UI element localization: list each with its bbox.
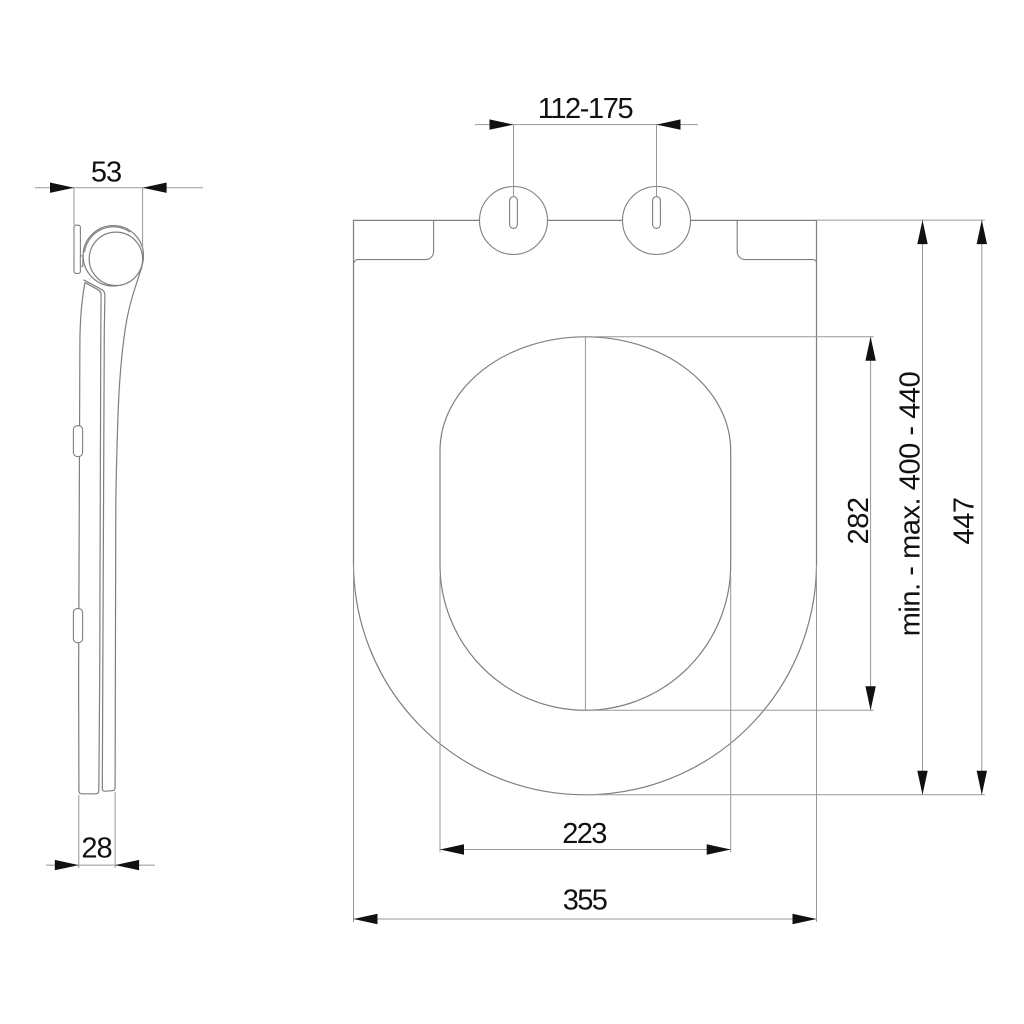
svg-text:282: 282 [843, 498, 875, 545]
svg-text:223: 223 [562, 818, 606, 850]
svg-text:447: 447 [949, 498, 981, 545]
svg-text:355: 355 [563, 884, 607, 916]
svg-text:min. - max. 400 - 440: min. - max. 400 - 440 [895, 372, 927, 637]
svg-text:28: 28 [81, 833, 111, 865]
svg-text:53: 53 [91, 157, 121, 189]
svg-text:112-175: 112-175 [538, 93, 633, 125]
